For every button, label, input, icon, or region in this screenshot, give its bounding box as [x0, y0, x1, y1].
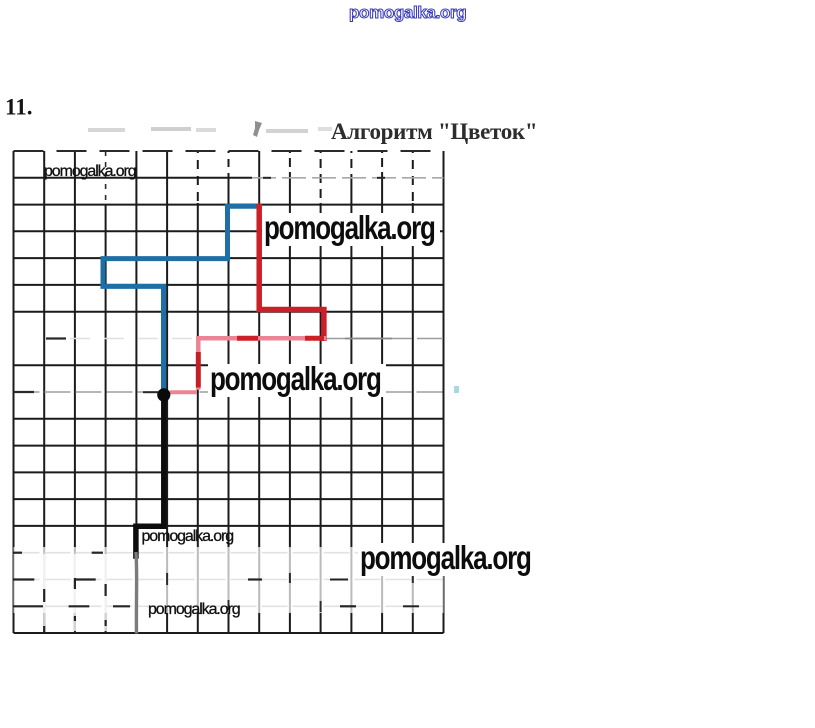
svg-text:pomogalka.org: pomogalka.org: [210, 361, 381, 398]
svg-text:11.: 11.: [5, 95, 32, 120]
svg-text:Алгоритм "Цветок": Алгоритм "Цветок": [331, 119, 537, 144]
svg-text:pomogalka.org: pomogalka.org: [264, 210, 435, 247]
svg-text:pomogalka.org: pomogalka.org: [349, 3, 466, 22]
svg-text:pomogalka.org: pomogalka.org: [148, 601, 240, 618]
svg-text:pomogalka.org: pomogalka.org: [142, 528, 234, 545]
svg-text:pomogalka.org: pomogalka.org: [44, 163, 136, 180]
svg-text:pomogalka.org: pomogalka.org: [360, 540, 531, 577]
